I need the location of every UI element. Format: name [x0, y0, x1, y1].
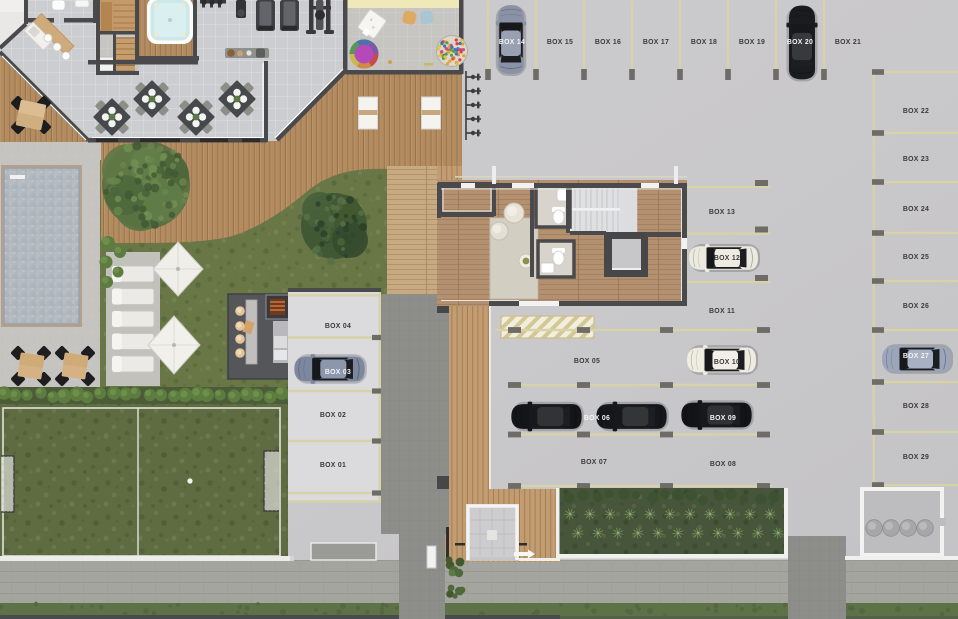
svg-text:BOX 23: BOX 23	[903, 156, 929, 163]
svg-text:BOX 27: BOX 27	[903, 353, 929, 360]
svg-text:BOX 09: BOX 09	[710, 415, 736, 422]
svg-text:BOX 16: BOX 16	[595, 39, 621, 46]
svg-text:BOX 25: BOX 25	[903, 254, 929, 261]
svg-text:BOX 22: BOX 22	[903, 108, 929, 115]
svg-text:BOX 29: BOX 29	[903, 454, 929, 461]
svg-text:BOX 05: BOX 05	[574, 358, 600, 365]
svg-text:BOX 19: BOX 19	[739, 39, 765, 46]
svg-text:BOX 15: BOX 15	[547, 39, 573, 46]
svg-text:BOX 08: BOX 08	[710, 461, 736, 468]
svg-text:BOX 10: BOX 10	[714, 359, 740, 366]
svg-text:BOX 02: BOX 02	[320, 412, 346, 419]
svg-text:BOX 20: BOX 20	[787, 39, 813, 46]
svg-text:BOX 18: BOX 18	[691, 39, 717, 46]
svg-text:BOX 13: BOX 13	[709, 209, 735, 216]
svg-text:BOX 24: BOX 24	[903, 206, 929, 213]
svg-text:BOX 17: BOX 17	[643, 39, 669, 46]
svg-text:BOX 07: BOX 07	[581, 459, 607, 466]
svg-text:BOX 26: BOX 26	[903, 303, 929, 310]
svg-text:BOX 28: BOX 28	[903, 403, 929, 410]
svg-text:BOX 01: BOX 01	[320, 462, 346, 469]
svg-text:BOX 06: BOX 06	[584, 415, 610, 422]
svg-text:BOX 12: BOX 12	[714, 255, 740, 262]
svg-text:BOX 21: BOX 21	[835, 39, 861, 46]
svg-text:BOX 14: BOX 14	[499, 39, 525, 46]
svg-text:BOX 11: BOX 11	[709, 308, 735, 315]
svg-text:BOX 04: BOX 04	[325, 323, 351, 330]
svg-text:BOX 03: BOX 03	[325, 369, 351, 376]
